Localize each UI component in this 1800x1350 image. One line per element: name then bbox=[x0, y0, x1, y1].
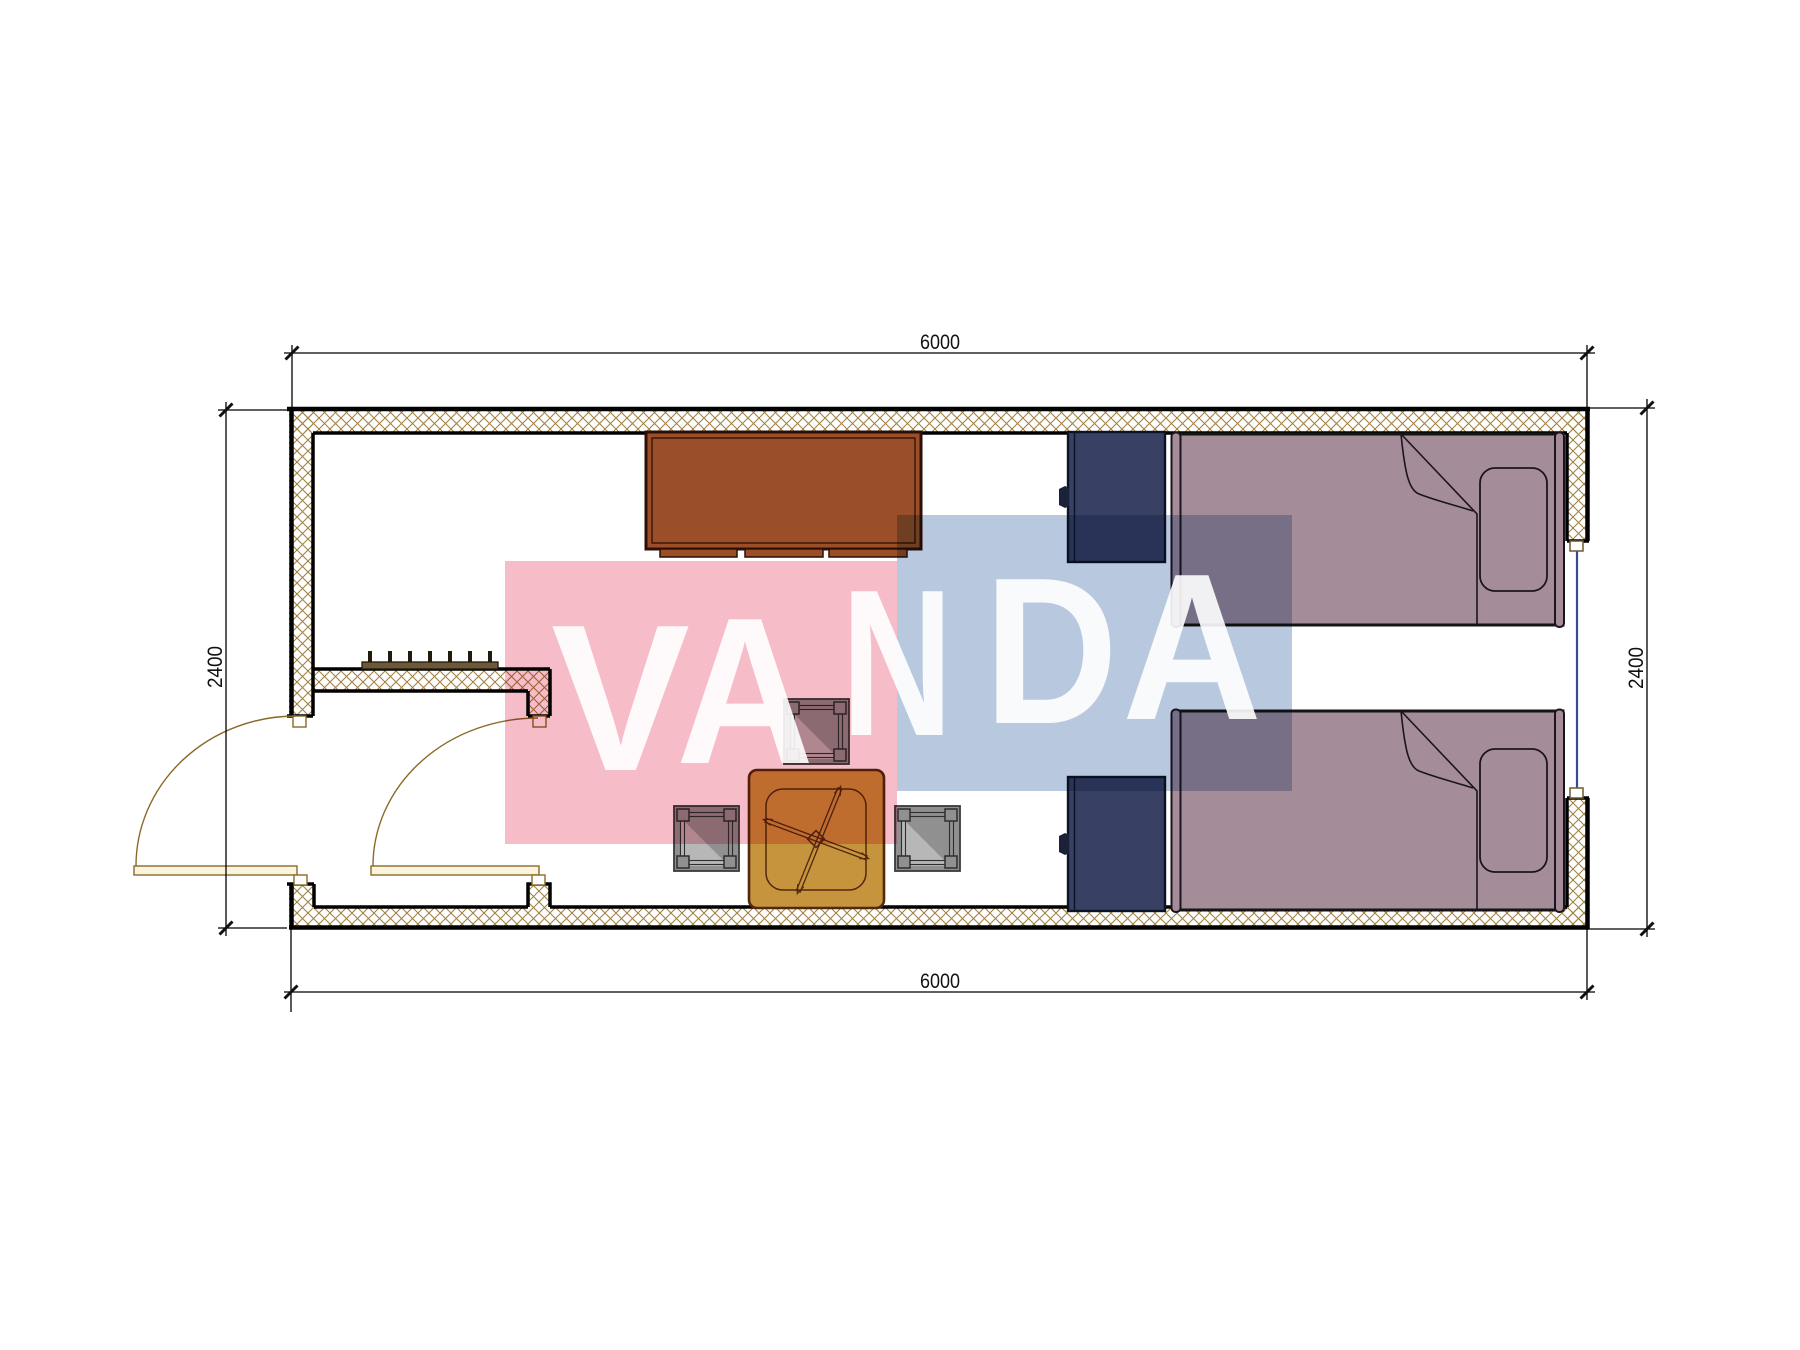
svg-text:D: D bbox=[984, 535, 1118, 768]
svg-text:A: A bbox=[1122, 531, 1262, 764]
svg-text:N: N bbox=[841, 547, 953, 780]
svg-text:6000: 6000 bbox=[920, 331, 960, 354]
svg-text:V: V bbox=[551, 582, 690, 815]
svg-text:2400: 2400 bbox=[1625, 647, 1648, 689]
svg-text:2400: 2400 bbox=[204, 646, 227, 688]
svg-text:A: A bbox=[676, 575, 814, 808]
svg-text:6000: 6000 bbox=[920, 970, 960, 993]
